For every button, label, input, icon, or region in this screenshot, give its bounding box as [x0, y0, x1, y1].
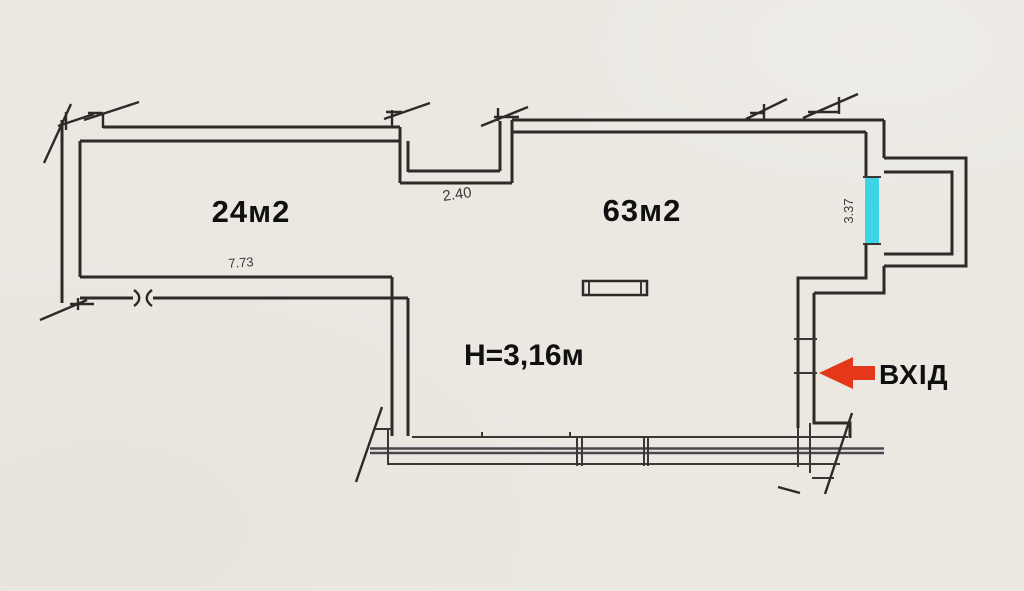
floor-plan-drawing: 24м2 63м2 H=3,16м 2.40 7.73 3.37 ВХІД: [0, 0, 1024, 586]
wall-break-symbol: [134, 290, 152, 306]
niche-left-break-marks: [384, 103, 430, 126]
interior-beam: [583, 281, 647, 295]
entrance-walls: [794, 244, 884, 438]
room-63-area-label: 63м2: [603, 193, 682, 228]
band-mullions: [577, 436, 648, 466]
top-niche-walls: [384, 103, 528, 183]
ceiling-height-label: H=3,16м: [464, 339, 584, 372]
left-room-width-dimension: 7.73: [228, 254, 254, 271]
entrance-label: ВХІД: [879, 359, 949, 390]
left-wall-break-mark: [44, 104, 71, 163]
entrance-inner-wall: [798, 244, 866, 428]
balcony-outer-wall: [884, 158, 966, 266]
top-wall-break-mark-2: [803, 94, 858, 118]
top-wall-break-mark-1: [746, 99, 787, 120]
bottom-left-break-marks: [40, 298, 94, 320]
beam-outline: [583, 281, 647, 295]
entrance-outer-wall: [814, 266, 884, 438]
balcony-inner-wall: [884, 172, 952, 254]
window-highlight: [865, 178, 879, 243]
shopfront-window-band: [356, 407, 884, 494]
floor-plan-photo: 24м2 63м2 H=3,16м 2.40 7.73 3.37 ВХІД: [0, 0, 1024, 586]
beam-end-caps: [589, 281, 641, 295]
left-partition-wall: [392, 277, 408, 436]
niche-right-break-marks: [481, 107, 528, 126]
balcony-and-window: [863, 120, 966, 266]
top-right-walls: [512, 94, 884, 132]
band-left-step: [375, 429, 392, 465]
band-left-break-mark: [356, 407, 382, 482]
niche-width-dimension: 2.40: [441, 184, 472, 205]
room-24-area-label: 24м2: [212, 194, 291, 229]
window-width-dimension: 3.37: [841, 198, 856, 223]
band-right-verticals: [798, 423, 834, 478]
entrance-arrow-icon: [819, 357, 875, 389]
